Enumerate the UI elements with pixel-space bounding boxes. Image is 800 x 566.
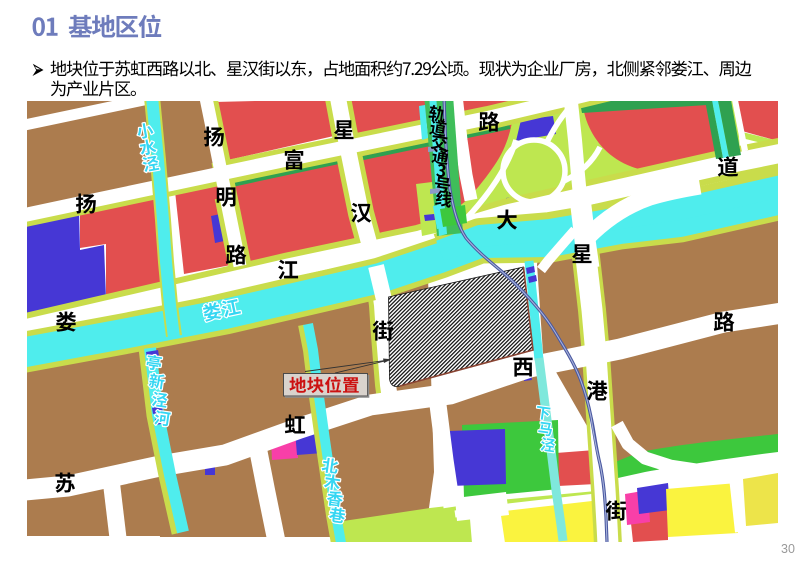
svg-text:30: 30	[781, 542, 795, 556]
